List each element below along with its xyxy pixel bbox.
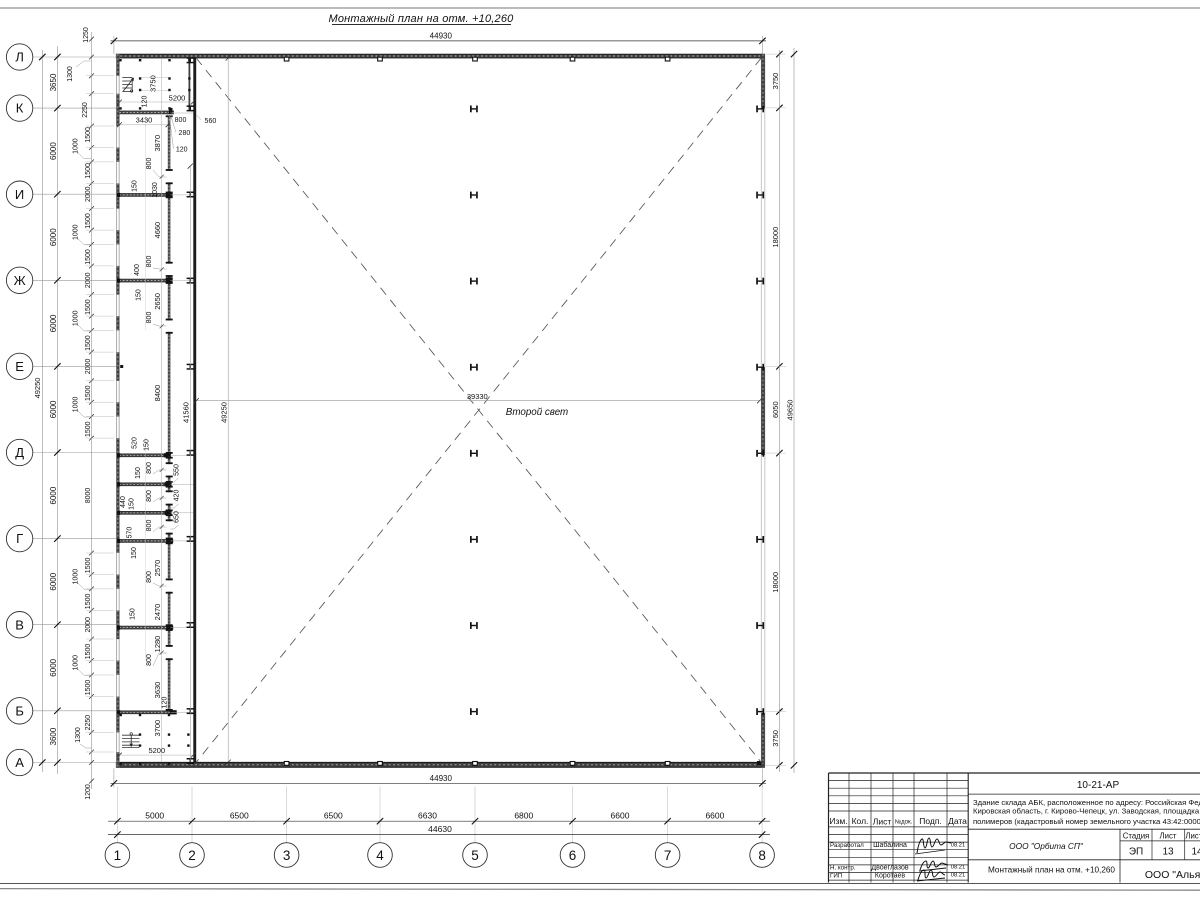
svg-text:150: 150 bbox=[144, 439, 151, 451]
svg-text:3430: 3430 bbox=[136, 116, 153, 125]
svg-text:4: 4 bbox=[376, 848, 384, 863]
svg-text:1000: 1000 bbox=[73, 569, 80, 585]
svg-text:1500: 1500 bbox=[85, 680, 92, 696]
svg-text:2: 2 bbox=[188, 848, 196, 863]
svg-text:полимеров (кадастровый номер з: полимеров (кадастровый номер земельного … bbox=[973, 817, 1200, 826]
svg-text:3630: 3630 bbox=[153, 682, 162, 699]
svg-text:Н. контр.: Н. контр. bbox=[830, 865, 856, 872]
svg-text:5200: 5200 bbox=[148, 746, 165, 755]
svg-text:А: А bbox=[15, 755, 24, 770]
svg-text:Монтажный план на отм. +10,260: Монтажный план на отм. +10,260 bbox=[988, 865, 1115, 874]
svg-text:Кировская область, г. Кирово-Ч: Кировская область, г. Кирово-Чепецк, ул.… bbox=[973, 807, 1200, 816]
svg-text:Коротаев: Коротаев bbox=[875, 873, 906, 880]
svg-text:150: 150 bbox=[135, 467, 142, 479]
svg-text:1280: 1280 bbox=[153, 636, 162, 653]
svg-text:5: 5 bbox=[471, 848, 479, 863]
svg-text:6800: 6800 bbox=[514, 811, 533, 821]
svg-text:2250: 2250 bbox=[82, 102, 89, 118]
svg-text:560: 560 bbox=[205, 118, 217, 125]
svg-text:Б: Б bbox=[15, 703, 24, 718]
svg-text:1300: 1300 bbox=[67, 66, 74, 82]
svg-text:1030: 1030 bbox=[152, 182, 159, 198]
svg-text:120: 120 bbox=[161, 697, 168, 709]
svg-text:Дата: Дата bbox=[948, 816, 967, 826]
svg-text:440: 440 bbox=[120, 496, 127, 508]
svg-text:800: 800 bbox=[146, 654, 153, 666]
svg-text:ООО "Орбита СП": ООО "Орбита СП" bbox=[1009, 841, 1084, 851]
svg-text:7: 7 bbox=[664, 848, 672, 863]
svg-text:800: 800 bbox=[146, 571, 153, 583]
svg-text:49650: 49650 bbox=[786, 400, 795, 421]
svg-text:10-21-АР: 10-21-АР bbox=[1077, 780, 1120, 791]
svg-text:2470: 2470 bbox=[153, 604, 162, 621]
svg-text:2000: 2000 bbox=[85, 186, 92, 202]
svg-text:6000: 6000 bbox=[49, 658, 58, 676]
svg-text:150: 150 bbox=[132, 180, 139, 192]
svg-text:4660: 4660 bbox=[153, 222, 162, 239]
svg-text:150: 150 bbox=[130, 608, 137, 620]
svg-text:6000: 6000 bbox=[49, 228, 58, 246]
svg-text:6000: 6000 bbox=[49, 142, 58, 160]
svg-text:Д: Д bbox=[15, 445, 24, 460]
svg-text:6050: 6050 bbox=[771, 401, 780, 418]
svg-text:49250: 49250 bbox=[33, 378, 42, 399]
svg-text:800: 800 bbox=[146, 462, 153, 474]
svg-text:1000: 1000 bbox=[73, 310, 80, 326]
svg-text:1500: 1500 bbox=[85, 213, 92, 229]
svg-text:1500: 1500 bbox=[85, 299, 92, 315]
svg-text:400: 400 bbox=[134, 264, 141, 276]
svg-text:Разработал: Разработал bbox=[830, 842, 864, 849]
svg-text:1500: 1500 bbox=[85, 249, 92, 265]
svg-text:800: 800 bbox=[146, 312, 153, 324]
svg-text:1: 1 bbox=[114, 848, 122, 863]
svg-text:Кол.: Кол. bbox=[852, 816, 869, 826]
svg-text:6000: 6000 bbox=[49, 486, 58, 504]
svg-text:Двоеглазов: Двоеглазов bbox=[871, 865, 908, 872]
svg-text:1000: 1000 bbox=[73, 655, 80, 671]
svg-text:3870: 3870 bbox=[153, 135, 162, 152]
svg-text:14: 14 bbox=[1191, 847, 1200, 858]
svg-text:2000: 2000 bbox=[85, 617, 92, 633]
svg-text:6600: 6600 bbox=[705, 811, 724, 821]
svg-text:1500: 1500 bbox=[85, 385, 92, 401]
svg-text:1500: 1500 bbox=[85, 558, 92, 574]
svg-text:№док.: №док. bbox=[895, 819, 913, 826]
svg-text:Ж: Ж bbox=[14, 273, 26, 288]
svg-text:08.21: 08.21 bbox=[951, 873, 966, 879]
svg-text:120: 120 bbox=[142, 96, 149, 108]
svg-text:18000: 18000 bbox=[771, 572, 780, 593]
svg-text:Е: Е bbox=[15, 359, 24, 374]
svg-text:Монтажный план на отм. +10,260: Монтажный план на отм. +10,260 bbox=[329, 13, 515, 25]
svg-text:1500: 1500 bbox=[85, 335, 92, 351]
svg-text:3750: 3750 bbox=[771, 730, 780, 747]
svg-text:6630: 6630 bbox=[418, 811, 437, 821]
svg-text:280: 280 bbox=[179, 130, 191, 137]
svg-text:В: В bbox=[15, 617, 24, 632]
svg-text:420: 420 bbox=[174, 490, 181, 502]
svg-text:Шабалина: Шабалина bbox=[873, 841, 907, 849]
svg-text:13: 13 bbox=[1162, 847, 1174, 858]
svg-text:3700: 3700 bbox=[153, 720, 162, 737]
svg-text:800: 800 bbox=[146, 490, 153, 502]
svg-text:120: 120 bbox=[176, 147, 188, 154]
svg-text:Изм.: Изм. bbox=[829, 816, 847, 826]
svg-text:570: 570 bbox=[127, 527, 134, 539]
svg-text:1000: 1000 bbox=[73, 397, 80, 413]
svg-text:Лист: Лист bbox=[1160, 831, 1177, 840]
svg-text:6500: 6500 bbox=[230, 811, 249, 821]
svg-text:1500: 1500 bbox=[85, 421, 92, 437]
svg-text:8400: 8400 bbox=[153, 385, 162, 402]
svg-text:08.21: 08.21 bbox=[951, 865, 966, 871]
svg-text:Лист: Лист bbox=[873, 817, 892, 827]
svg-text:2250: 2250 bbox=[85, 715, 92, 731]
svg-text:3600: 3600 bbox=[49, 727, 58, 745]
svg-text:150: 150 bbox=[136, 289, 143, 301]
svg-text:5000: 5000 bbox=[145, 811, 164, 821]
svg-text:44930: 44930 bbox=[430, 774, 453, 783]
svg-text:6500: 6500 bbox=[324, 811, 343, 821]
svg-text:8000: 8000 bbox=[85, 488, 92, 504]
svg-text:3750: 3750 bbox=[148, 75, 157, 92]
svg-text:08.21: 08.21 bbox=[951, 843, 966, 849]
svg-text:800: 800 bbox=[146, 158, 153, 170]
svg-text:6000: 6000 bbox=[49, 400, 58, 418]
svg-text:8: 8 bbox=[758, 848, 766, 863]
svg-text:650: 650 bbox=[174, 511, 181, 523]
svg-text:6000: 6000 bbox=[49, 314, 58, 332]
svg-text:39330: 39330 bbox=[467, 392, 488, 401]
svg-text:И: И bbox=[15, 187, 24, 202]
svg-text:1000: 1000 bbox=[73, 224, 80, 240]
svg-text:44630: 44630 bbox=[428, 824, 452, 834]
svg-text:800: 800 bbox=[146, 520, 153, 532]
svg-text:1000: 1000 bbox=[73, 138, 80, 154]
svg-text:1500: 1500 bbox=[85, 594, 92, 610]
svg-text:2000: 2000 bbox=[85, 359, 92, 375]
svg-text:1300: 1300 bbox=[75, 727, 82, 743]
svg-text:150: 150 bbox=[129, 498, 136, 510]
svg-text:800: 800 bbox=[175, 117, 187, 124]
svg-text:Г: Г bbox=[16, 531, 23, 546]
svg-text:1500: 1500 bbox=[85, 644, 92, 660]
svg-text:Листов: Листов bbox=[1185, 831, 1200, 840]
svg-text:2570: 2570 bbox=[153, 560, 162, 577]
svg-text:Второй свет: Второй свет bbox=[506, 407, 568, 418]
svg-text:800: 800 bbox=[146, 256, 153, 268]
svg-text:41560: 41560 bbox=[181, 402, 190, 423]
svg-text:1500: 1500 bbox=[85, 127, 92, 143]
svg-text:3: 3 bbox=[283, 848, 291, 863]
svg-text:К: К bbox=[16, 101, 24, 116]
svg-text:3650: 3650 bbox=[49, 73, 58, 91]
svg-text:520: 520 bbox=[132, 437, 139, 449]
svg-text:1500: 1500 bbox=[85, 163, 92, 179]
svg-text:6: 6 bbox=[569, 848, 577, 863]
svg-text:Л: Л bbox=[15, 50, 24, 65]
svg-text:2650: 2650 bbox=[153, 293, 162, 310]
svg-text:1250: 1250 bbox=[83, 27, 90, 43]
svg-text:2000: 2000 bbox=[85, 272, 92, 288]
svg-text:ЭП: ЭП bbox=[1129, 847, 1143, 858]
svg-text:5200: 5200 bbox=[169, 93, 186, 102]
svg-text:44930: 44930 bbox=[430, 31, 453, 40]
svg-text:1200: 1200 bbox=[85, 784, 92, 800]
svg-text:Подп.: Подп. bbox=[919, 816, 942, 826]
svg-text:ООО "Альянспроект": ООО "Альянспроект" bbox=[1145, 869, 1200, 881]
svg-text:550: 550 bbox=[174, 464, 181, 476]
svg-text:ГИП: ГИП bbox=[830, 873, 842, 880]
svg-text:18000: 18000 bbox=[771, 227, 780, 248]
svg-text:3750: 3750 bbox=[771, 73, 780, 90]
svg-text:49250: 49250 bbox=[220, 402, 229, 423]
svg-text:150: 150 bbox=[131, 547, 138, 559]
svg-text:Стадия: Стадия bbox=[1123, 831, 1150, 840]
svg-text:6600: 6600 bbox=[611, 811, 630, 821]
svg-text:6000: 6000 bbox=[49, 572, 58, 590]
